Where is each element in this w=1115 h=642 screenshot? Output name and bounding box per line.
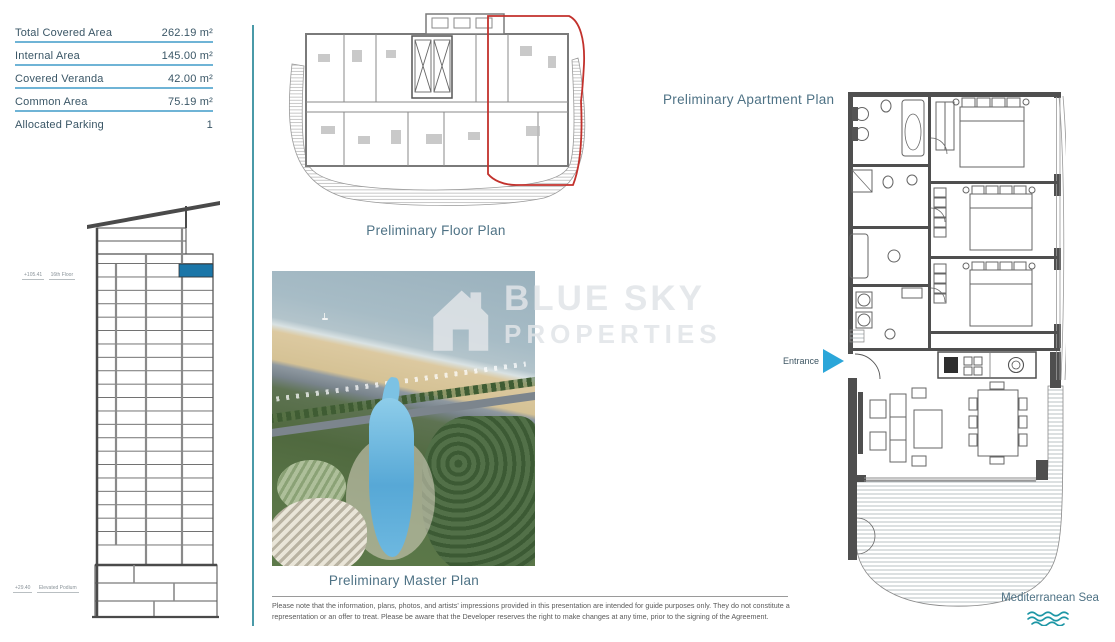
floor-name: 16th Floor	[49, 272, 76, 280]
table-row: Internal Area 145.00 m²	[15, 43, 213, 66]
table-row: Total Covered Area 262.19 m²	[15, 20, 213, 43]
elevation-value: +105.41	[22, 272, 44, 280]
veranda-terrace	[856, 386, 1063, 606]
area-label: Total Covered Area	[15, 27, 112, 39]
watermark-text: BLUE SKY PROPERTIES	[504, 281, 722, 347]
entrance-label: Entrance	[783, 356, 819, 366]
area-label: Internal Area	[15, 50, 80, 62]
area-label: Allocated Parking	[15, 119, 104, 131]
podium-elevation-marker: +29.40 Elevated Podium	[13, 585, 82, 593]
master-plan-photo	[272, 271, 535, 566]
kitchen-counter	[938, 352, 1036, 378]
area-value: 1	[207, 119, 213, 131]
floor-plan-title: Preliminary Floor Plan	[276, 223, 596, 238]
master-plan-title: Preliminary Master Plan	[272, 573, 536, 588]
boat	[322, 318, 328, 320]
table-row: Common Area 75.19 m²	[15, 89, 213, 112]
highlighted-floor	[179, 264, 213, 277]
floor-plan-drawing	[276, 6, 596, 221]
apartment-plan-drawing	[842, 88, 1066, 612]
sea-label: Mediterranean Sea	[988, 592, 1112, 604]
disclaimer-text: Please note that the information, plans,…	[272, 601, 792, 623]
entrance-door-arc	[855, 354, 880, 379]
floor-elevation-marker: +105.41 16th Floor	[22, 272, 78, 280]
section-divider	[252, 25, 254, 626]
area-summary-table: Total Covered Area 262.19 m² Internal Ar…	[15, 20, 213, 133]
disclaimer-rule	[272, 596, 788, 597]
table-row: Covered Veranda 42.00 m²	[15, 66, 213, 89]
entrance-arrow-icon	[823, 349, 844, 373]
waves-icon	[1026, 610, 1074, 626]
living-room-furniture	[870, 388, 942, 466]
area-value: 262.19 m²	[162, 27, 213, 39]
apartment-plan-title: Preliminary Apartment Plan	[663, 92, 834, 107]
area-value: 145.00 m²	[162, 50, 213, 62]
elevation-value: +29.40	[13, 585, 32, 593]
park-trees	[422, 416, 535, 566]
area-label: Common Area	[15, 96, 88, 108]
watermark-line2: PROPERTIES	[504, 321, 722, 347]
area-label: Covered Veranda	[15, 73, 104, 85]
watermark-line1: BLUE SKY	[504, 281, 722, 316]
area-value: 42.00 m²	[168, 73, 213, 85]
brochure-page: Total Covered Area 262.19 m² Internal Ar…	[0, 0, 1115, 642]
floor-name: Elevated Podium	[37, 585, 79, 593]
table-row: Allocated Parking 1	[15, 112, 213, 133]
dining-set	[969, 382, 1027, 464]
curved-building	[272, 498, 367, 566]
area-value: 75.19 m²	[168, 96, 213, 108]
building-elevation-diagram	[82, 197, 222, 623]
tower-elevation-drawing	[82, 197, 222, 623]
